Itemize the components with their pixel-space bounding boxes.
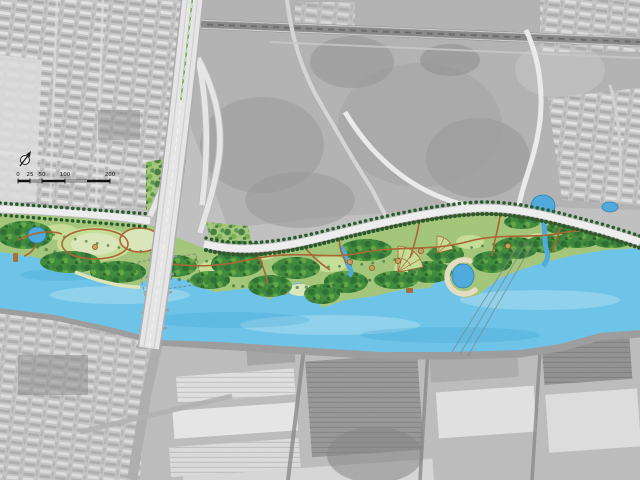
photo-grain-overlay [0,0,640,480]
scale-label-50: 50 [39,172,46,178]
scale-label-0: 0 [16,172,20,178]
scale-label-100: 100 [60,172,71,178]
site-plan-map[interactable]: 0 25 50 100 200 [0,0,640,480]
scale-label-25: 25 [27,172,34,178]
scale-label-200: 200 [105,172,116,178]
